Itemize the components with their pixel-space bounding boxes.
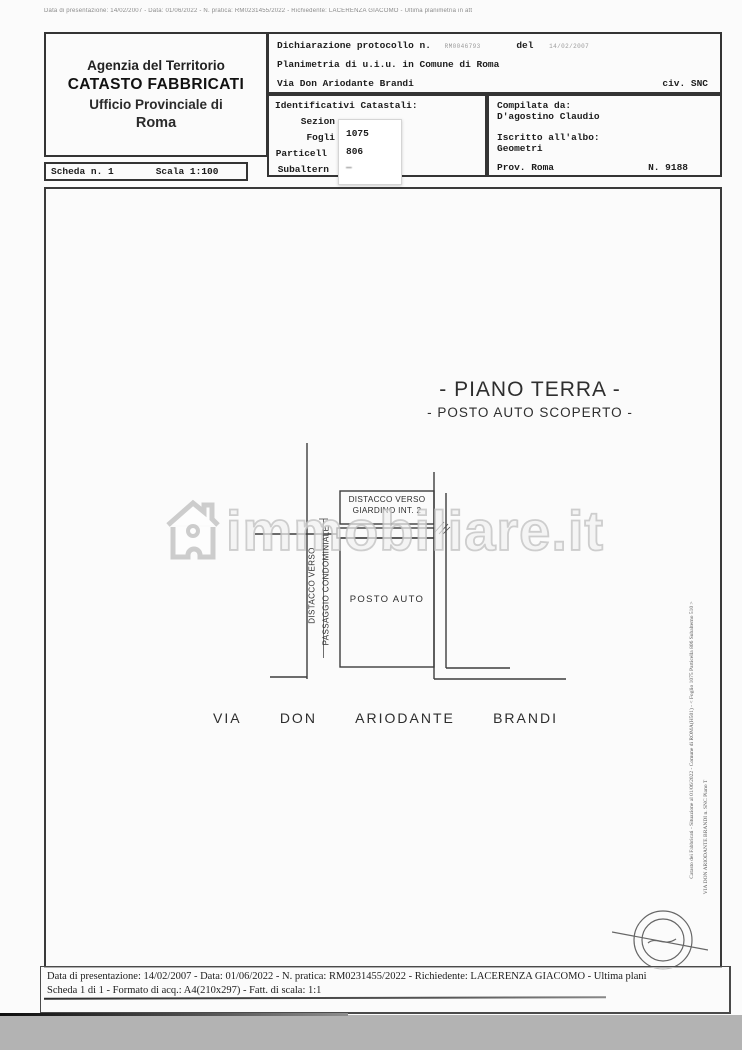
agency-header-box: Agenzia del Territorio CATASTO FABBRICAT… xyxy=(44,32,268,157)
document-page: Data di presentazione: 14/02/2007 - Data… xyxy=(0,0,742,1050)
del-label: del xyxy=(516,40,533,51)
compiler-box: Compilata da: D'agostino Claudio Iscritt… xyxy=(487,94,722,177)
plan-subtitle: - POSTO AUTO SCOPERTO - xyxy=(375,405,685,420)
margin-note-address: VIA DON ARIODANTE BRANDI n. SNC Piano T xyxy=(703,757,709,917)
bottom-gray-strip xyxy=(0,1015,742,1050)
albo-label: Iscritto all'albo: xyxy=(497,132,712,143)
street-line: Via Don Ariodante Brandi xyxy=(277,78,414,89)
sheet-scale: Scala 1:100 xyxy=(156,166,219,177)
footer-box: Data di presentazione: 14/02/2007 - Data… xyxy=(40,966,731,1014)
agency-line: Agenzia del Territorio xyxy=(46,58,266,73)
row-label-subalterno: Subaltern xyxy=(263,164,329,175)
compiler-title: Compilata da: xyxy=(497,100,712,111)
plan-title: - PIANO TERRA - xyxy=(375,378,685,402)
values-patch: 1075 806 — xyxy=(338,119,402,185)
identifiers-title: Identificativi Catastali: xyxy=(275,100,418,111)
foglio-value: 1075 xyxy=(346,128,369,139)
top-microtext: Data di presentazione: 14/02/2007 - Data… xyxy=(44,8,694,14)
margin-note-catasto: Catasto dei Fabbricati - Situazione al 0… xyxy=(689,575,695,905)
row-label-foglio: Fogli xyxy=(269,132,335,143)
protocol-date: 14/02/2007 xyxy=(549,43,589,50)
protocol-label: Dichiarazione protocollo n. xyxy=(277,40,431,51)
compiler-name: D'agostino Claudio xyxy=(497,111,712,122)
office-city: Roma xyxy=(46,115,266,131)
plan-title-block: - PIANO TERRA - - POSTO AUTO SCOPERTO - xyxy=(375,378,685,420)
floor-plan-drawing xyxy=(44,187,722,968)
footer-line2: Scheda 1 di 1 - Formato di acq.: A4(210x… xyxy=(47,985,723,996)
civic-number: civ. SNC xyxy=(662,78,708,89)
label-distacco-passaggio-line2: PASSAGGIO CONDOMINIALE xyxy=(322,511,331,661)
declaration-box: Dichiarazione protocollo n. RM0046793 de… xyxy=(267,32,722,94)
row-label-sezione: Sezion xyxy=(269,116,335,127)
subalterno-value: — xyxy=(346,162,352,173)
albo-value: Geometri xyxy=(497,143,712,154)
bottom-rule xyxy=(0,1013,348,1016)
sheet-bar: Scheda n. 1 Scala 1:100 xyxy=(44,162,248,181)
label-distacco-passaggio-line1: DISTACCO VERSO xyxy=(308,511,317,661)
sheet-number: Scheda n. 1 xyxy=(51,166,114,177)
particella-value: 806 xyxy=(346,146,363,157)
label-posto-auto: POSTO AUTO xyxy=(340,594,434,605)
north-arrow-icon xyxy=(612,902,708,976)
register-number: N. 9188 xyxy=(648,162,688,173)
footer-line1: Data di presentazione: 14/02/2007 - Data… xyxy=(47,971,723,982)
protocol-number: RM0046793 xyxy=(445,43,481,50)
label-distacco-giardino: DISTACCO VERSO GIARDINO INT. 2 xyxy=(340,494,434,516)
catasto-title: CATASTO FABBRICATI xyxy=(46,76,266,94)
object-line: Planimetria di u.i.u. in Comune di Roma xyxy=(277,59,712,70)
street-name: VIA DON ARIODANTE BRANDI xyxy=(213,710,558,726)
prov-label: Prov. Roma xyxy=(497,162,554,173)
office-line: Ufficio Provinciale di xyxy=(46,97,266,112)
row-label-particella: Particell xyxy=(261,148,327,159)
